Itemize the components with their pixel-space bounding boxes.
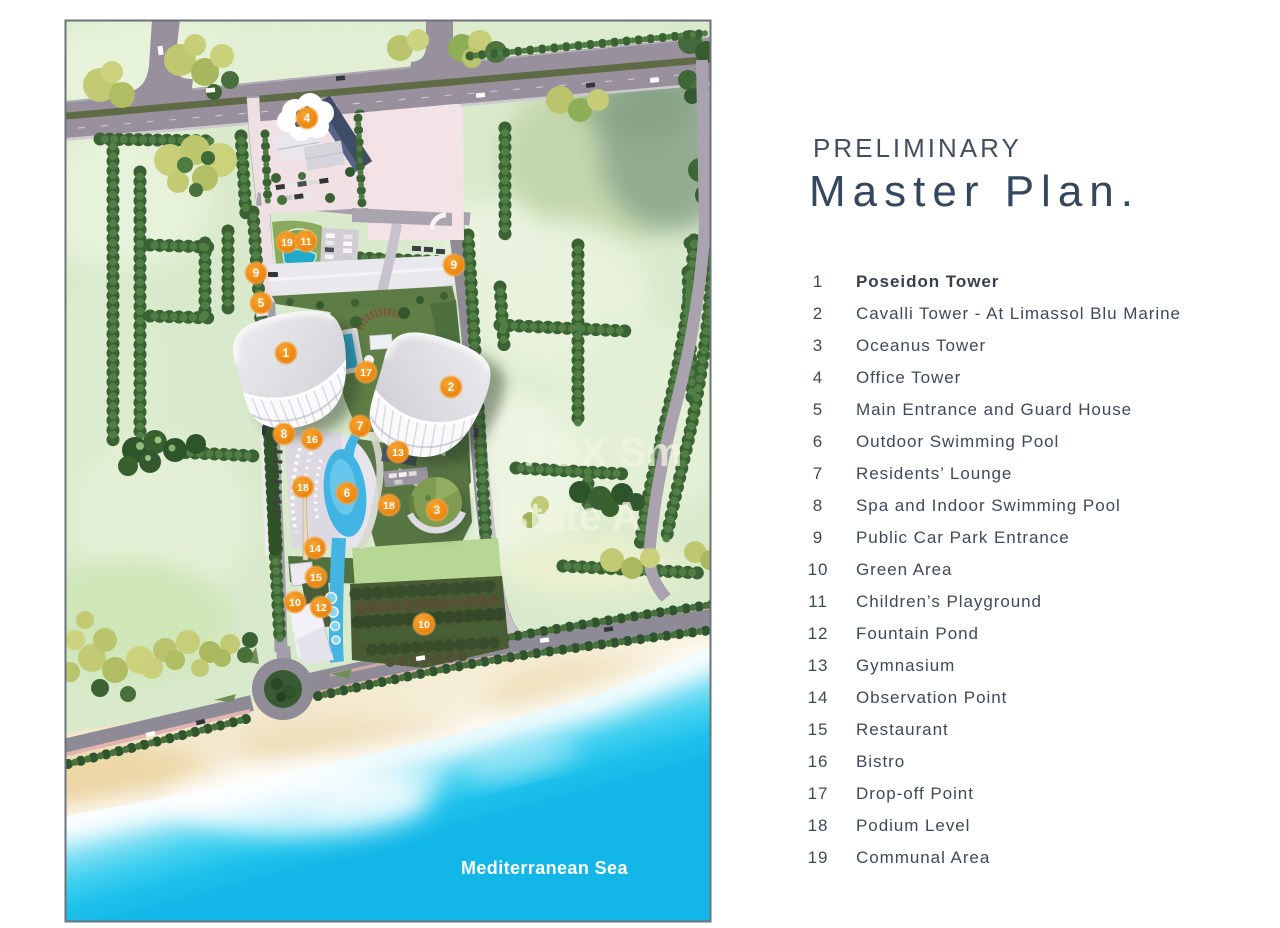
svg-text:11: 11 [300,236,311,248]
svg-text:13: 13 [392,447,404,459]
svg-text:18: 18 [297,482,309,494]
svg-text:1: 1 [283,348,290,360]
svg-text:16: 16 [306,434,318,446]
svg-text:2: 2 [448,382,454,394]
svg-text:9: 9 [451,260,457,272]
svg-text:5: 5 [258,298,265,310]
svg-text:6: 6 [344,488,350,500]
svg-text:7: 7 [357,421,363,433]
svg-text:10: 10 [418,619,430,631]
svg-text:19: 19 [281,237,293,249]
svg-text:15: 15 [310,572,322,584]
svg-text:state A: state A [506,493,641,539]
svg-text:10: 10 [289,597,301,609]
svg-text:17: 17 [360,367,372,379]
svg-text:3: 3 [434,505,440,517]
svg-text:9: 9 [253,268,259,280]
svg-text:18: 18 [383,500,395,512]
svg-text:14: 14 [309,543,321,555]
svg-text:Mediterranean Sea: Mediterranean Sea [461,858,628,878]
svg-text:8: 8 [281,429,288,441]
svg-text:FOX Sm: FOX Sm [523,429,682,475]
svg-text:12: 12 [315,602,327,614]
svg-text:4: 4 [304,113,311,125]
